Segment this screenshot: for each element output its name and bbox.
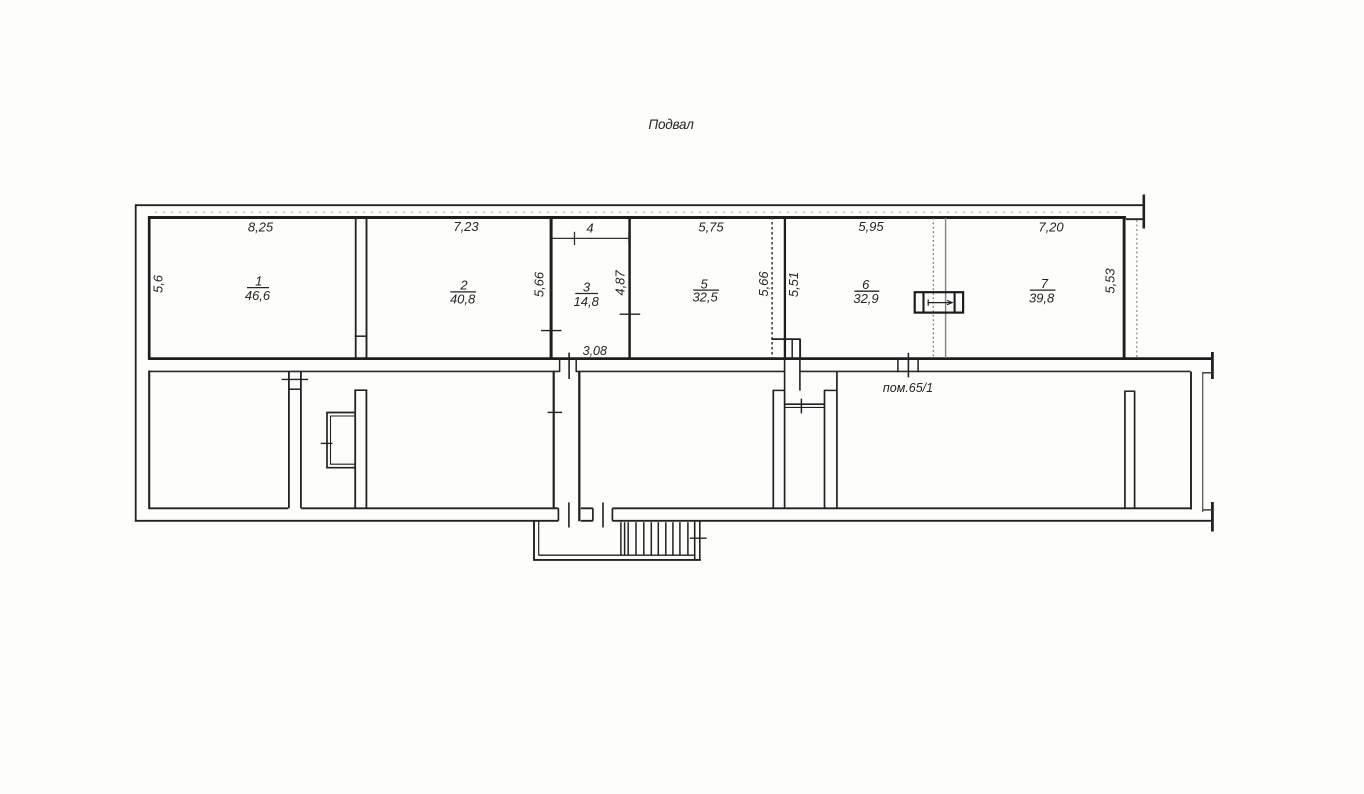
svg-text:32,9: 32,9 xyxy=(853,291,878,306)
svg-text:40,8: 40,8 xyxy=(450,291,476,306)
svg-text:4,87: 4,87 xyxy=(613,270,628,296)
svg-text:1: 1 xyxy=(255,274,262,289)
svg-text:5,75: 5,75 xyxy=(698,220,724,235)
svg-text:2: 2 xyxy=(459,278,468,293)
svg-text:5,95: 5,95 xyxy=(858,219,884,234)
svg-text:6: 6 xyxy=(862,277,870,292)
svg-text:5,66: 5,66 xyxy=(532,271,547,297)
svg-text:3,08: 3,08 xyxy=(583,344,607,358)
svg-text:5,66: 5,66 xyxy=(756,271,771,297)
svg-text:8,25: 8,25 xyxy=(248,220,274,235)
svg-text:7,20: 7,20 xyxy=(1038,220,1064,235)
svg-text:7,23: 7,23 xyxy=(453,219,479,234)
svg-text:4: 4 xyxy=(586,221,593,236)
svg-text:5,6: 5,6 xyxy=(151,274,166,293)
svg-text:пом.65/1: пом.65/1 xyxy=(883,381,933,395)
svg-text:Подвал: Подвал xyxy=(648,117,694,132)
svg-text:32,5: 32,5 xyxy=(692,290,718,305)
svg-text:46,6: 46,6 xyxy=(245,288,271,303)
svg-text:7: 7 xyxy=(1041,276,1049,291)
svg-text:39,8: 39,8 xyxy=(1029,291,1055,306)
svg-text:5,51: 5,51 xyxy=(786,272,801,297)
svg-text:3: 3 xyxy=(583,280,591,295)
svg-text:5,53: 5,53 xyxy=(1103,268,1118,294)
svg-text:14,8: 14,8 xyxy=(574,294,600,309)
